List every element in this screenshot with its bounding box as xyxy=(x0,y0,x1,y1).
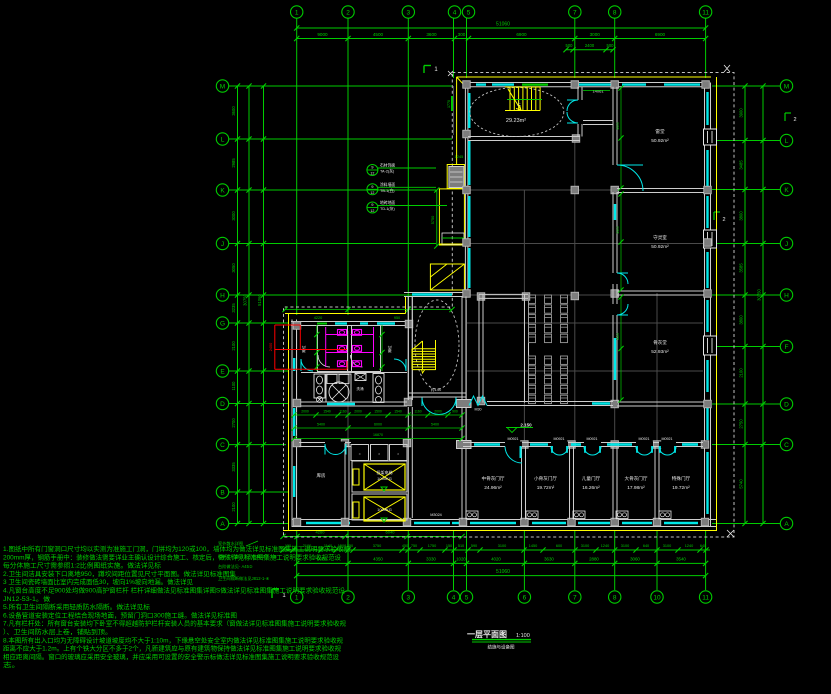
svg-text:2: 2 xyxy=(722,217,725,223)
svg-text:结施与设备图: 结施与设备图 xyxy=(488,644,515,651)
svg-text:1750: 1750 xyxy=(428,544,436,548)
svg-text:1540: 1540 xyxy=(394,410,402,414)
svg-text:1540: 1540 xyxy=(323,410,331,414)
svg-text:3540: 3540 xyxy=(676,557,686,562)
svg-text:6: 6 xyxy=(523,594,527,601)
svg-text:3 卫生间瓷砖墙面比室内完成面低30，坡向1%坡向地漏。做法: 3 卫生间瓷砖墙面比室内完成面低30，坡向1%坡向地漏。做法详见 xyxy=(3,577,194,586)
svg-text:4500: 4500 xyxy=(373,32,384,37)
svg-text:M: M xyxy=(784,83,789,90)
svg-text:M0921: M0921 xyxy=(587,437,598,441)
svg-text:雷堂: 雷堂 xyxy=(655,128,665,135)
svg-text:9000: 9000 xyxy=(317,32,328,37)
svg-text:4: 4 xyxy=(453,9,457,16)
svg-text:JN12-53-1。做: JN12-53-1。做 xyxy=(3,594,51,603)
svg-text:1: 1 xyxy=(295,9,299,16)
svg-text:3630: 3630 xyxy=(544,557,554,562)
svg-text:3800: 3800 xyxy=(739,211,744,221)
svg-text:51060: 51060 xyxy=(257,294,262,306)
svg-text:中骨灰门厅: 中骨灰门厅 xyxy=(482,475,505,482)
svg-text:6000: 6000 xyxy=(374,423,382,427)
svg-text:L: L xyxy=(785,138,789,145)
svg-text:3000: 3000 xyxy=(590,32,601,37)
svg-text:4350: 4350 xyxy=(373,557,383,562)
svg-text:12: 12 xyxy=(370,191,374,195)
svg-text:900: 900 xyxy=(452,410,458,414)
svg-text:5750: 5750 xyxy=(431,216,435,224)
svg-text:200mm厚，钢筋手册中：装修做法需要详业主确认设计综合施工: 200mm厚，钢筋手册中：装修做法需要详业主确认设计综合施工、核定后，做法详见标… xyxy=(3,552,342,561)
svg-text:6900: 6900 xyxy=(655,32,666,37)
svg-text:J: J xyxy=(785,241,788,248)
svg-text:每分体施工尺寸需参照1:2比例图纸实施。做法详见标: 每分体施工尺寸需参照1:2比例图纸实施。做法详见标 xyxy=(3,561,162,570)
svg-text:300: 300 xyxy=(458,32,466,37)
svg-text:2: 2 xyxy=(346,594,350,601)
svg-text:30750: 30750 xyxy=(757,289,762,301)
svg-text:2750: 2750 xyxy=(739,419,744,429)
svg-text:5740: 5740 xyxy=(739,479,744,489)
svg-text:蹲位: 蹲位 xyxy=(387,345,392,353)
svg-text:TB-1(白): TB-1(白) xyxy=(380,188,395,193)
svg-text:1000KG: 1000KG xyxy=(377,507,392,512)
svg-text:3100: 3100 xyxy=(663,544,671,548)
svg-text:2985: 2985 xyxy=(231,158,236,168)
svg-text:H: H xyxy=(220,292,225,299)
svg-text:3100: 3100 xyxy=(581,544,589,548)
svg-text:500: 500 xyxy=(607,43,615,48)
svg-text:19.72m²: 19.72m² xyxy=(537,485,555,491)
svg-text:3: 3 xyxy=(406,594,410,601)
svg-text:E: E xyxy=(220,368,225,375)
svg-text:640: 640 xyxy=(700,544,706,548)
svg-text:涂料墙面: 涂料墙面 xyxy=(380,182,395,187)
svg-text:3900: 3900 xyxy=(739,108,744,118)
svg-text:1:100: 1:100 xyxy=(516,633,530,639)
svg-text:500: 500 xyxy=(566,43,574,48)
svg-text:8.本图所有出入口均为无障碍设计坡道坡度均不大于1:10m，: 8.本图所有出入口均为无障碍设计坡道坡度均不大于1:10m，下缘悬空处安全室内做… xyxy=(3,635,344,644)
svg-text:1770: 1770 xyxy=(447,100,451,108)
svg-text:3000: 3000 xyxy=(231,211,236,221)
svg-text:750: 750 xyxy=(411,544,417,548)
svg-text:51060: 51060 xyxy=(496,22,510,28)
svg-text:4020: 4020 xyxy=(491,557,501,562)
svg-text:3: 3 xyxy=(406,9,410,16)
svg-text:1: 1 xyxy=(295,594,299,601)
svg-text:特殊门厅: 特殊门厅 xyxy=(672,475,691,482)
svg-text:M30: M30 xyxy=(475,408,482,412)
svg-text:1020: 1020 xyxy=(456,557,466,562)
svg-text:1245: 1245 xyxy=(455,155,463,159)
svg-text:2000: 2000 xyxy=(354,410,362,414)
svg-text:3600: 3600 xyxy=(426,32,437,37)
svg-text:2.150: 2.150 xyxy=(520,423,532,428)
svg-text:3300: 3300 xyxy=(616,226,620,234)
svg-text:骨灰堂: 骨灰堂 xyxy=(653,339,667,346)
svg-text:担架电梯: 担架电梯 xyxy=(377,469,393,475)
svg-text:G: G xyxy=(220,320,225,327)
svg-text:5400: 5400 xyxy=(317,423,325,427)
svg-text:50.92m²: 50.92m² xyxy=(651,138,669,144)
svg-text:7.凡有栏杆处：所有窗台安装均下卧室不得超越防护栏杆安装人员: 7.凡有栏杆处：所有窗台安装均下卧室不得超越防护栏杆安装人员的基本要求（窗做法详… xyxy=(3,619,347,628)
svg-text:10: 10 xyxy=(653,594,661,601)
svg-text:TD-1(灰): TD-1(灰) xyxy=(380,206,395,211)
svg-text:）、卫生间防水层上卷，铺贴到顶。: ）、卫生间防水层上卷，铺贴到顶。 xyxy=(3,627,112,636)
svg-text:51060: 51060 xyxy=(496,569,510,575)
svg-text:17.98m²: 17.98m² xyxy=(627,485,645,491)
svg-text:1100: 1100 xyxy=(231,381,236,391)
svg-text:地砖地面: 地砖地面 xyxy=(380,200,395,205)
svg-text:M3024: M3024 xyxy=(430,513,442,517)
svg-text:一层平面图: 一层平面图 xyxy=(467,630,507,639)
svg-text:J: J xyxy=(221,241,224,248)
svg-text:库房: 库房 xyxy=(317,472,326,479)
svg-text:M0921: M0921 xyxy=(508,437,519,441)
svg-text:3235: 3235 xyxy=(231,303,236,313)
svg-text:1240: 1240 xyxy=(685,544,693,548)
svg-text:F: F xyxy=(785,344,789,351)
svg-text:12: 12 xyxy=(370,172,374,176)
svg-text:4: 4 xyxy=(452,594,456,601)
svg-text:2100: 2100 xyxy=(231,502,236,512)
svg-text:K: K xyxy=(784,187,789,194)
svg-text:2100: 2100 xyxy=(739,368,744,378)
svg-text:2: 2 xyxy=(346,9,350,16)
svg-text:相应距离间隔。窗口的玻璃应采用安全玻璃，并应采用可设置的安全: 相应距离间隔。窗口的玻璃应采用安全玻璃，并应采用可设置的安全警示标做法详见标准图… xyxy=(3,652,340,661)
svg-text:6900: 6900 xyxy=(516,32,527,37)
svg-text:石材饰面: 石材饰面 xyxy=(380,163,395,168)
svg-text:1160: 1160 xyxy=(339,410,346,414)
svg-text:C: C xyxy=(220,442,225,449)
svg-text:3750: 3750 xyxy=(373,544,381,548)
svg-text:50.92m²: 50.92m² xyxy=(651,244,669,250)
svg-text:M0921: M0921 xyxy=(554,437,565,441)
svg-text:510: 510 xyxy=(458,544,464,548)
svg-text:○: ○ xyxy=(359,452,361,456)
svg-text:19.72m²: 19.72m² xyxy=(672,485,690,491)
svg-text:上: 上 xyxy=(517,100,521,106)
svg-text:12: 12 xyxy=(370,209,374,213)
svg-text:450: 450 xyxy=(402,544,408,548)
svg-text:3335: 3335 xyxy=(231,462,236,472)
svg-text:2000: 2000 xyxy=(301,410,309,414)
svg-text:4.凡窗台高度不足900处均做900高护窗栏杆 栏杆详细做法: 4.凡窗台高度不足900处均做900高护窗栏杆 栏杆详细做法见标准图集详图S做法… xyxy=(3,586,346,595)
svg-text:○: ○ xyxy=(397,452,399,456)
svg-text:2100: 2100 xyxy=(231,341,236,351)
svg-text:志。: 志。 xyxy=(3,660,20,669)
svg-text:30750: 30750 xyxy=(243,294,248,306)
svg-text:8: 8 xyxy=(613,9,617,16)
svg-text:52.93m²: 52.93m² xyxy=(651,349,669,355)
svg-text:16870: 16870 xyxy=(373,433,383,437)
svg-text:16.26m²: 16.26m² xyxy=(582,485,600,491)
svg-text:640: 640 xyxy=(643,544,649,548)
svg-text:150: 150 xyxy=(446,544,452,548)
svg-text:3050: 3050 xyxy=(231,263,236,273)
svg-text:3330: 3330 xyxy=(426,557,436,562)
svg-text:C: C xyxy=(784,442,789,449)
svg-text:5.所有卫生间隔断采用轻质防水隔断。做法详见标: 5.所有卫生间隔断采用轻质防水隔断。做法详见标 xyxy=(3,602,151,611)
svg-text:14061: 14061 xyxy=(592,89,604,94)
svg-text:1.图纸中所有门窗洞口尺寸均以实测为准施工门洞，门垪均为12: 1.图纸中所有门窗洞口尺寸均以实测为准施工门洞，门垪均为120或100，墙体均为… xyxy=(3,544,351,553)
svg-text:D: D xyxy=(784,401,789,408)
svg-text:7: 7 xyxy=(573,594,577,601)
svg-text:2400: 2400 xyxy=(585,43,595,48)
svg-text:3060: 3060 xyxy=(630,557,640,562)
svg-text:11: 11 xyxy=(702,594,709,601)
svg-text:距离不应大于1.2m。上有个铁大分区不多于2个，凡新建筑应与: 距离不应大于1.2m。上有个铁大分区不多于2个，凡新建筑应与原有建筑物保持做法详… xyxy=(3,644,342,653)
svg-text:950: 950 xyxy=(394,316,400,320)
svg-text:6.设备管道安装定位工程结合现场地面，预留门洞口300施工缝: 6.设备管道安装定位工程结合现场地面，预留门洞口300施工缝。做法详见标准图 xyxy=(3,610,237,619)
svg-text:M0921: M0921 xyxy=(639,437,650,441)
svg-text:小骨灰门厅: 小骨灰门厅 xyxy=(534,475,557,482)
svg-text:5: 5 xyxy=(465,594,469,601)
svg-text:2.卫生间洁具安装下口离地950，蹲坎间距位置见尺寸平面图。: 2.卫生间洁具安装下口离地950，蹲坎间距位置见尺寸平面图。做法详见标准图集 xyxy=(3,569,237,578)
svg-text:M: M xyxy=(220,83,225,90)
svg-text:3585: 3585 xyxy=(739,263,744,273)
svg-text:台阶做法见- A45②: 台阶做法见- A45② xyxy=(218,563,253,570)
svg-text:1500: 1500 xyxy=(374,410,382,414)
svg-text:1000KG: 1000KG xyxy=(377,476,392,481)
svg-text:○: ○ xyxy=(378,452,380,456)
svg-text:1240: 1240 xyxy=(601,544,609,548)
svg-text:3485: 3485 xyxy=(739,160,744,170)
svg-text:大骨灰门厅: 大骨灰门厅 xyxy=(625,475,648,482)
svg-text:3100: 3100 xyxy=(498,544,506,548)
svg-text:11: 11 xyxy=(702,9,709,16)
svg-text:B: B xyxy=(220,489,224,496)
svg-text:29.23m²: 29.23m² xyxy=(506,118,526,124)
svg-text:蹲位: 蹲位 xyxy=(301,345,306,353)
svg-text:约1.00: 约1.00 xyxy=(431,387,441,392)
svg-text:8: 8 xyxy=(613,594,617,601)
svg-text:5400: 5400 xyxy=(431,423,439,427)
svg-text:7: 7 xyxy=(573,9,577,16)
svg-text:1450: 1450 xyxy=(529,544,537,548)
svg-text:3100: 3100 xyxy=(621,544,629,548)
svg-text:L: L xyxy=(221,136,225,143)
svg-text:2700: 2700 xyxy=(231,418,236,428)
svg-text:3600: 3600 xyxy=(231,106,236,116)
svg-text:2000: 2000 xyxy=(434,410,442,414)
svg-text:4220: 4220 xyxy=(314,316,322,320)
svg-text:2880: 2880 xyxy=(589,557,599,562)
svg-text:D: D xyxy=(220,401,225,408)
svg-text:600: 600 xyxy=(556,544,562,548)
svg-text:A: A xyxy=(784,521,789,528)
svg-text:3300: 3300 xyxy=(616,122,620,130)
svg-text:590: 590 xyxy=(471,544,477,548)
svg-text:24.96m²: 24.96m² xyxy=(484,485,502,491)
svg-text:2400: 2400 xyxy=(269,343,273,351)
svg-text:儿童门厅: 儿童门厅 xyxy=(582,475,601,482)
svg-text:守灵室: 守灵室 xyxy=(653,234,667,241)
svg-text:3300: 3300 xyxy=(616,333,620,341)
svg-text:H: H xyxy=(784,292,789,299)
svg-text:2: 2 xyxy=(793,117,796,123)
svg-text:洗涌: 洗涌 xyxy=(356,386,364,391)
svg-text:1160: 1160 xyxy=(414,410,421,414)
svg-text:3800: 3800 xyxy=(739,315,744,325)
svg-text:TA-2(灰): TA-2(灰) xyxy=(380,169,395,174)
svg-text:5: 5 xyxy=(467,9,471,16)
svg-text:M0921: M0921 xyxy=(662,437,673,441)
svg-text:K: K xyxy=(220,187,225,194)
svg-text:A: A xyxy=(220,521,225,528)
